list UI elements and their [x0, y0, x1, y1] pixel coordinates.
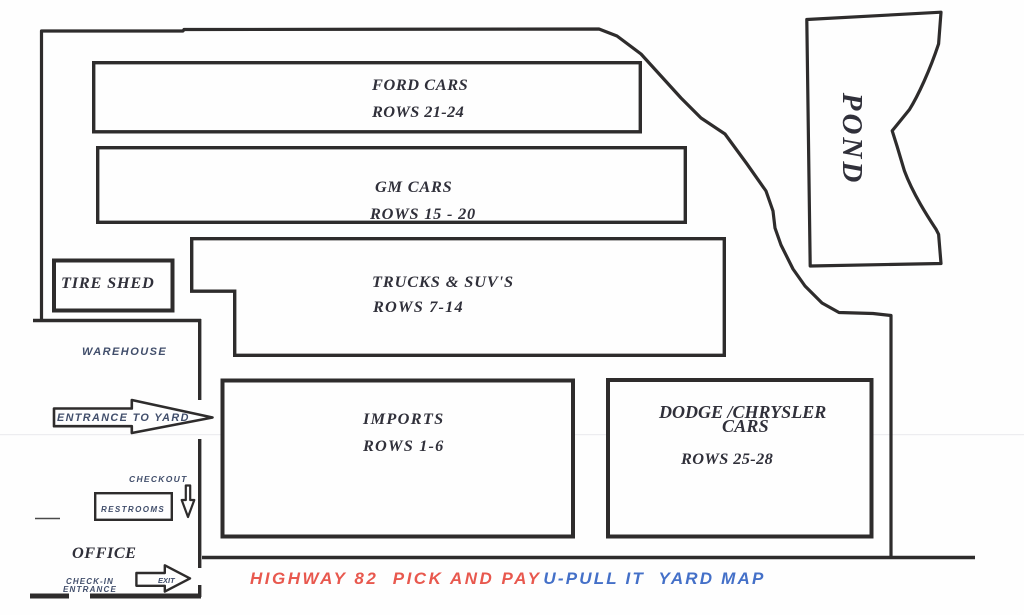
svg-text:CARS: CARS: [722, 416, 769, 436]
svg-text:RESTROOMS: RESTROOMS: [101, 505, 165, 514]
svg-text:OFFICE: OFFICE: [72, 543, 137, 562]
svg-text:POND: POND: [836, 92, 868, 186]
svg-text:ROWS 1-6: ROWS 1-6: [362, 436, 445, 455]
svg-text:EXIT: EXIT: [158, 576, 176, 585]
svg-text:IMPORTS: IMPORTS: [362, 409, 444, 428]
svg-text:GM CARS: GM CARS: [375, 177, 453, 196]
svg-text:ROWS 25-28: ROWS 25-28: [680, 449, 773, 468]
svg-text:TRUCKS & SUV'S: TRUCKS & SUV'S: [372, 272, 514, 291]
svg-text:ROWS 15 - 20: ROWS 15 - 20: [369, 204, 476, 223]
svg-text:ENTRANCE: ENTRANCE: [63, 585, 117, 594]
svg-text:ROWS 7-14: ROWS 7-14: [372, 297, 464, 316]
svg-text:CHECKOUT: CHECKOUT: [129, 474, 188, 484]
svg-text:WAREHOUSE: WAREHOUSE: [82, 346, 167, 358]
svg-text:FORD CARS: FORD CARS: [371, 75, 468, 94]
svg-text:TIRE SHED: TIRE SHED: [61, 273, 155, 292]
svg-text:ROWS 21-24: ROWS 21-24: [371, 102, 464, 121]
svg-text:ENTRANCE TO YARD: ENTRANCE TO YARD: [57, 412, 190, 424]
svg-text:HIGHWAY 82 PICK AND PAY U-PUL: HIGHWAY 82 PICK AND PAY U-PULL IT YARD M…: [250, 569, 766, 588]
